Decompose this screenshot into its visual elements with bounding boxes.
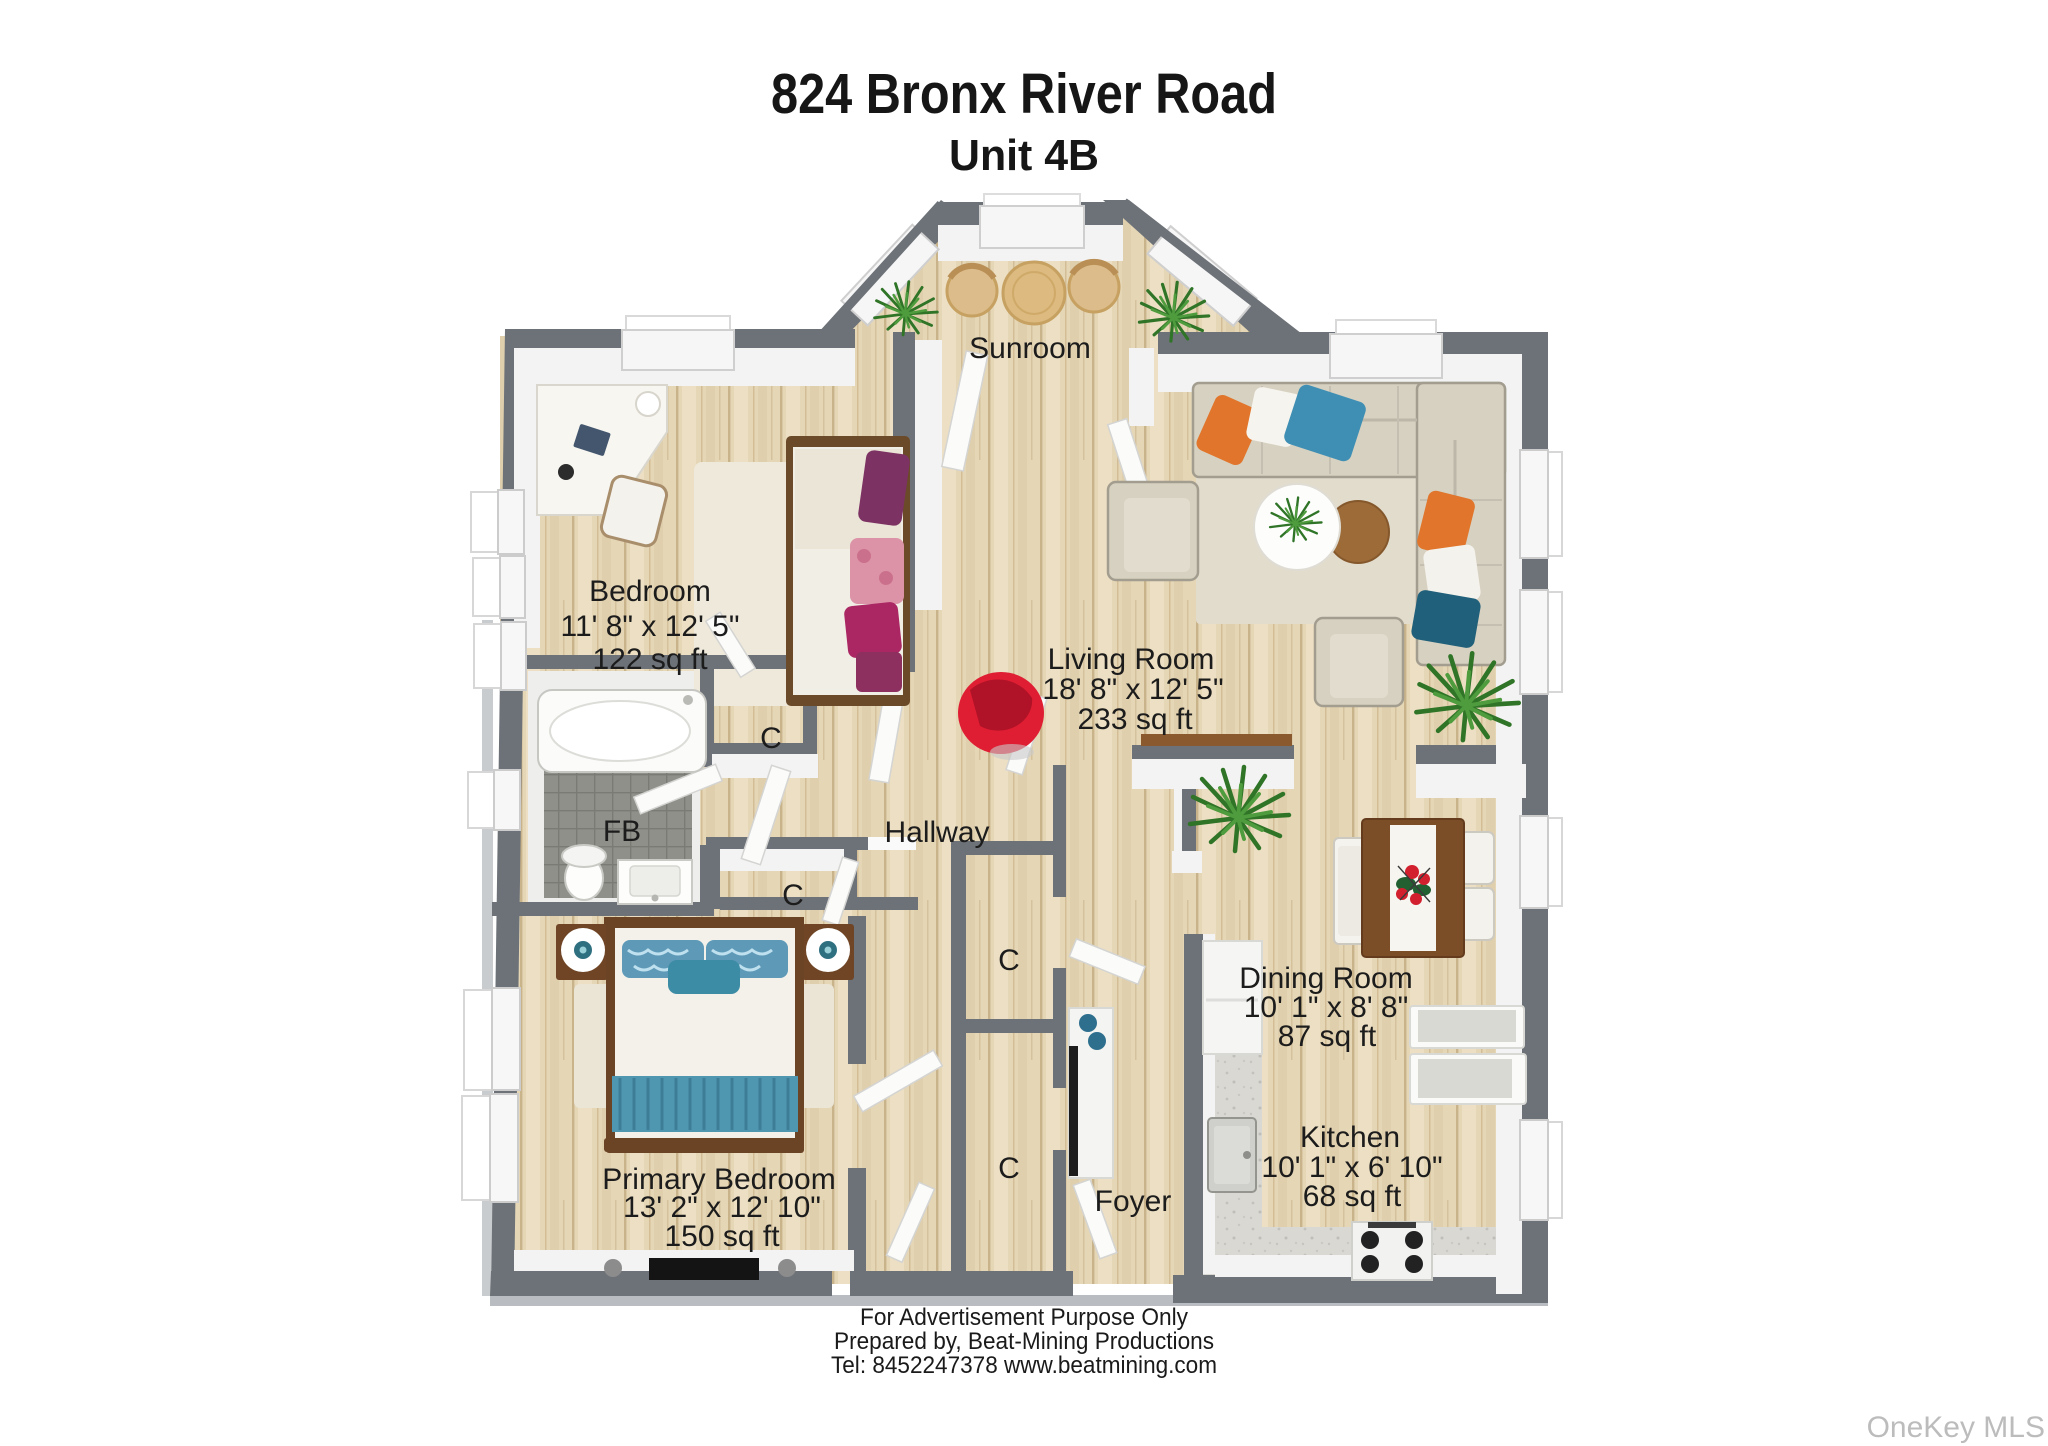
svg-text:18' 8" x 12' 5": 18' 8" x 12' 5" [1042,673,1223,706]
svg-text:233 sq ft: 233 sq ft [1077,703,1193,736]
svg-text:87 sq ft: 87 sq ft [1278,1020,1377,1053]
svg-text:824 Bronx River Road: 824 Bronx River Road [771,62,1277,126]
svg-text:Sunroom: Sunroom [969,332,1091,365]
svg-text:Living Room: Living Room [1048,643,1215,676]
svg-text:Unit 4B: Unit 4B [949,131,1099,180]
svg-text:Hallway: Hallway [884,816,989,849]
svg-text:Prepared by, Beat-Mining Produ: Prepared by, Beat-Mining Productions [834,1328,1214,1355]
svg-text:11' 8" x 12' 5": 11' 8" x 12' 5" [561,610,740,643]
svg-text:Bedroom: Bedroom [589,575,711,608]
svg-text:C: C [998,1152,1020,1185]
svg-text:C: C [998,944,1020,977]
svg-text:Kitchen: Kitchen [1300,1121,1400,1154]
svg-text:For Advertisement Purpose Only: For Advertisement Purpose Only [860,1304,1188,1331]
svg-text:122 sq ft: 122 sq ft [592,643,708,676]
svg-text:Foyer: Foyer [1095,1185,1172,1218]
svg-text:C: C [760,722,782,755]
svg-text:150 sq ft: 150 sq ft [664,1220,780,1253]
svg-text:Tel: 8452247378 www.beatmining: Tel: 8452247378 www.beatmining.com [831,1352,1217,1379]
svg-text:68 sq ft: 68 sq ft [1303,1180,1402,1213]
svg-text:C: C [782,879,804,912]
svg-text:OneKey MLS: OneKey MLS [1867,1411,2045,1444]
svg-text:FB: FB [603,815,641,848]
